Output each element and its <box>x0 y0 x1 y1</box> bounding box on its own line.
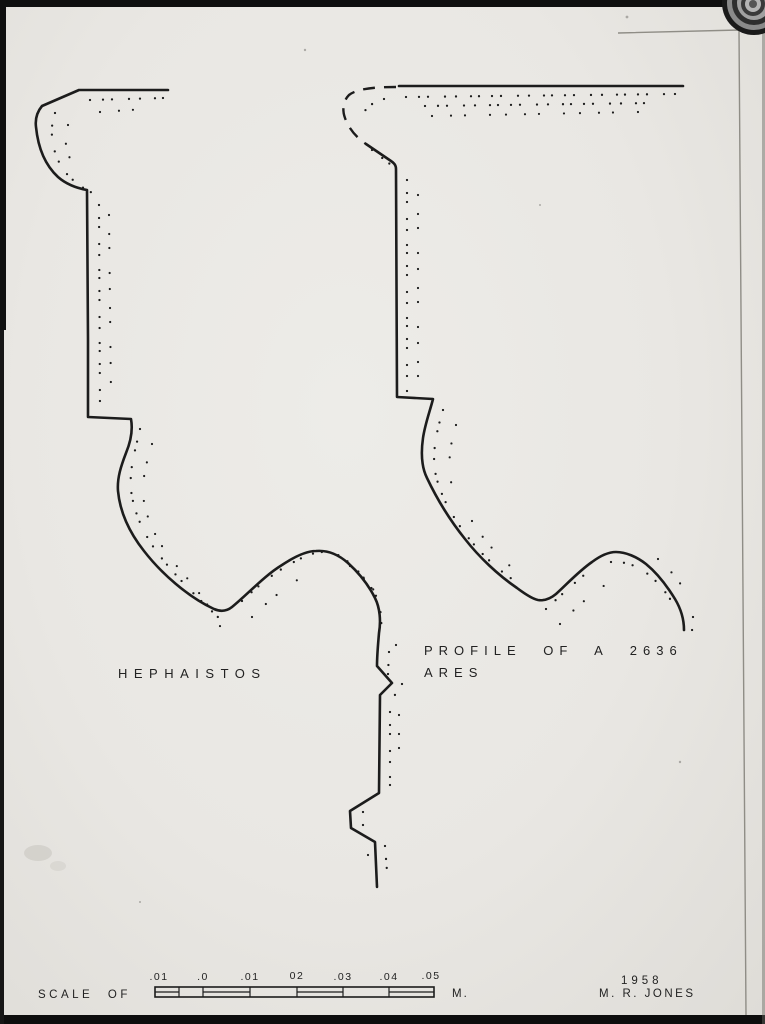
author-label: M. R. JONES <box>599 988 696 1000</box>
ares-stipple-row1 <box>360 94 693 631</box>
scan-edge-left-top <box>0 0 6 330</box>
ares-label-line2: ARES <box>424 665 483 680</box>
scale-tick-label: .01 <box>240 971 259 983</box>
scan-edge-frame <box>0 0 765 1024</box>
hephaistos-label: HEPHAISTOS <box>118 666 267 681</box>
ares-profile-outline <box>366 144 684 630</box>
ares-profile-restored-dashed-edge <box>343 87 396 144</box>
scanned-profile-drawing-page: HEPHAISTOS PROFILE OF A 2636 ARES SCALE … <box>0 0 765 1024</box>
scale-tick-label: .04 <box>379 971 398 983</box>
paper-edge-line <box>618 30 746 1015</box>
hephaistos-profile-outline <box>36 90 392 887</box>
hephaistos-stipple-row2 <box>66 109 399 872</box>
scale-tick-label: .01 <box>149 971 168 983</box>
hephaistos-profile <box>36 90 402 887</box>
scale-tick-label: .0 <box>197 971 209 983</box>
hephaistos-stipple-row1 <box>52 98 402 884</box>
ares-label-line1: PROFILE OF A 2636 <box>424 643 683 658</box>
scan-edge-top <box>0 0 765 7</box>
drawing-canvas <box>0 0 765 1024</box>
scale-bar <box>155 987 434 997</box>
scale-unit-label: M. <box>452 988 469 1000</box>
scale-tick-label: .05 <box>421 970 440 982</box>
ares-profile <box>343 86 693 631</box>
scale-tick-label: .03 <box>333 971 352 983</box>
year-label: 1958 <box>621 975 663 987</box>
scan-edge-bottom <box>0 1015 765 1024</box>
scale-tick-label: 02 <box>290 970 305 982</box>
scale-of-label: SCALE OF <box>38 989 131 1001</box>
ares-stipple-row2 <box>418 112 689 624</box>
